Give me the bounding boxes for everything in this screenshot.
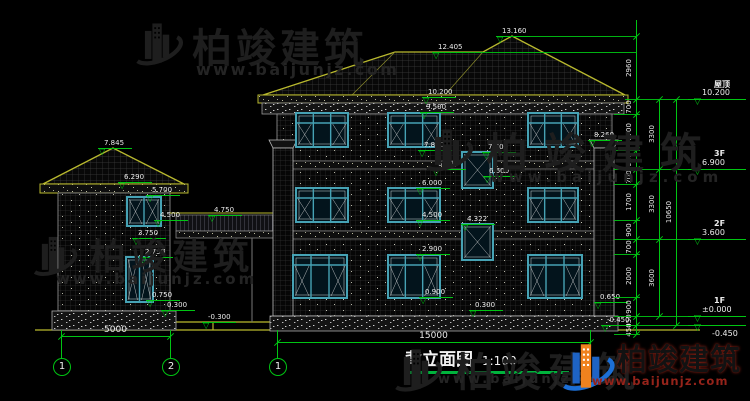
window bbox=[528, 255, 582, 298]
dimension-label: 900 bbox=[625, 223, 633, 236]
floor-level-value: 3.600 bbox=[702, 228, 725, 237]
floor-level-name: 1F bbox=[714, 296, 725, 305]
level-label: 7.845 bbox=[104, 139, 124, 147]
level-triangle-icon: ▽ bbox=[470, 310, 476, 317]
extension-line bbox=[516, 36, 636, 37]
window bbox=[296, 113, 348, 147]
watermark-logo-icon bbox=[130, 12, 186, 76]
dimension-label: 900 bbox=[625, 300, 633, 313]
level-label: 4.500 bbox=[422, 211, 442, 219]
dimension-label: 700 bbox=[625, 240, 633, 253]
axis-bubble: 1 bbox=[269, 358, 287, 376]
extension-line bbox=[614, 220, 640, 221]
floor-level-triangle-icon: ▽ bbox=[694, 239, 701, 246]
level-triangle-icon: ▽ bbox=[99, 148, 105, 155]
level-label: 0.300 bbox=[475, 301, 495, 309]
level-label: 4.750 bbox=[214, 206, 234, 214]
watermark-logo-icon bbox=[388, 340, 446, 400]
window bbox=[296, 188, 348, 222]
brand-logo: 柏竣建筑 www.baijunjz.com bbox=[550, 322, 750, 401]
dimension-label: 5000 bbox=[86, 325, 146, 335]
left-roof bbox=[43, 148, 184, 184]
floor-level-triangle-icon: ▽ bbox=[694, 99, 701, 106]
level-triangle-icon: ▽ bbox=[417, 220, 423, 227]
level-triangle-icon: ▽ bbox=[119, 182, 125, 189]
floor-level-value: ±0.000 bbox=[702, 305, 732, 314]
level-triangle-icon: ▽ bbox=[420, 297, 426, 304]
watermark: 柏竣建筑www.baijunjz.com bbox=[130, 12, 490, 102]
level-label: 13.160 bbox=[502, 27, 527, 35]
extension-line bbox=[170, 330, 171, 359]
level-triangle-icon: ▽ bbox=[462, 224, 468, 231]
level-triangle-icon: ▽ bbox=[203, 322, 209, 329]
level-label: 9.500 bbox=[426, 103, 446, 111]
level-triangle-icon: ▽ bbox=[147, 195, 153, 202]
floor-level-name: 2F bbox=[714, 219, 725, 228]
dimension-line bbox=[61, 336, 170, 337]
level-label: 5.700 bbox=[152, 186, 172, 194]
watermark-url: www.baijunjz.com bbox=[196, 60, 399, 79]
level-triangle-icon: ▽ bbox=[209, 215, 215, 222]
brand-logo-url: www.baijunjz.com bbox=[592, 374, 729, 388]
brand-logo-text: 柏竣建筑 bbox=[617, 335, 741, 379]
extension-line bbox=[614, 114, 640, 115]
level-label: 6.290 bbox=[124, 173, 144, 181]
watermark: 柏竣建筑www.baijunjz.com bbox=[420, 118, 750, 208]
level-label: 4.500 bbox=[160, 211, 180, 219]
level-label: 2.900 bbox=[422, 245, 442, 253]
extension-line bbox=[614, 297, 640, 298]
axis-bubble: 2 bbox=[162, 358, 180, 376]
watermark-url: www.baijunjz.com bbox=[56, 270, 257, 288]
level-label: 0.900 bbox=[425, 288, 445, 296]
dimension-label: 700 bbox=[625, 100, 633, 113]
extension-line bbox=[61, 330, 62, 359]
cad-drawing-canvas: 背立面图1:100 ▽7.845▽6.290▽5.700▽4.500▽2.750… bbox=[0, 0, 750, 401]
watermark-url: www.baijunjz.com bbox=[490, 168, 723, 186]
watermark: 柏竣建筑www.baijunjz.com bbox=[28, 226, 388, 316]
level-triangle-icon: ▽ bbox=[595, 302, 601, 309]
axis-bubble: 1 bbox=[53, 358, 71, 376]
extension-line bbox=[614, 254, 640, 255]
dimension-label: 2960 bbox=[625, 59, 633, 77]
dimension-label: 3600 bbox=[648, 269, 656, 287]
extension-line bbox=[277, 330, 278, 359]
level-triangle-icon: ▽ bbox=[497, 36, 503, 43]
watermark-logo-icon bbox=[420, 118, 476, 182]
level-triangle-icon: ▽ bbox=[417, 254, 423, 261]
extension-line bbox=[614, 316, 746, 317]
brand-logo-icon bbox=[556, 334, 618, 400]
floor-level-value: 10.200 bbox=[702, 88, 730, 97]
level-label: 4.322 bbox=[467, 215, 487, 223]
dimension-label: 2000 bbox=[625, 267, 633, 285]
extension-line bbox=[625, 99, 746, 100]
extension-line bbox=[614, 239, 746, 240]
